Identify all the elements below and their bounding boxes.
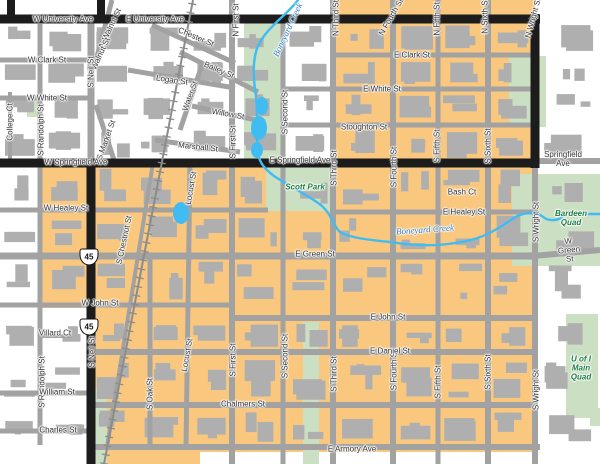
city-street-map: W University AveE University AveW Clark … — [0, 0, 600, 464]
map-canvas — [0, 0, 600, 464]
